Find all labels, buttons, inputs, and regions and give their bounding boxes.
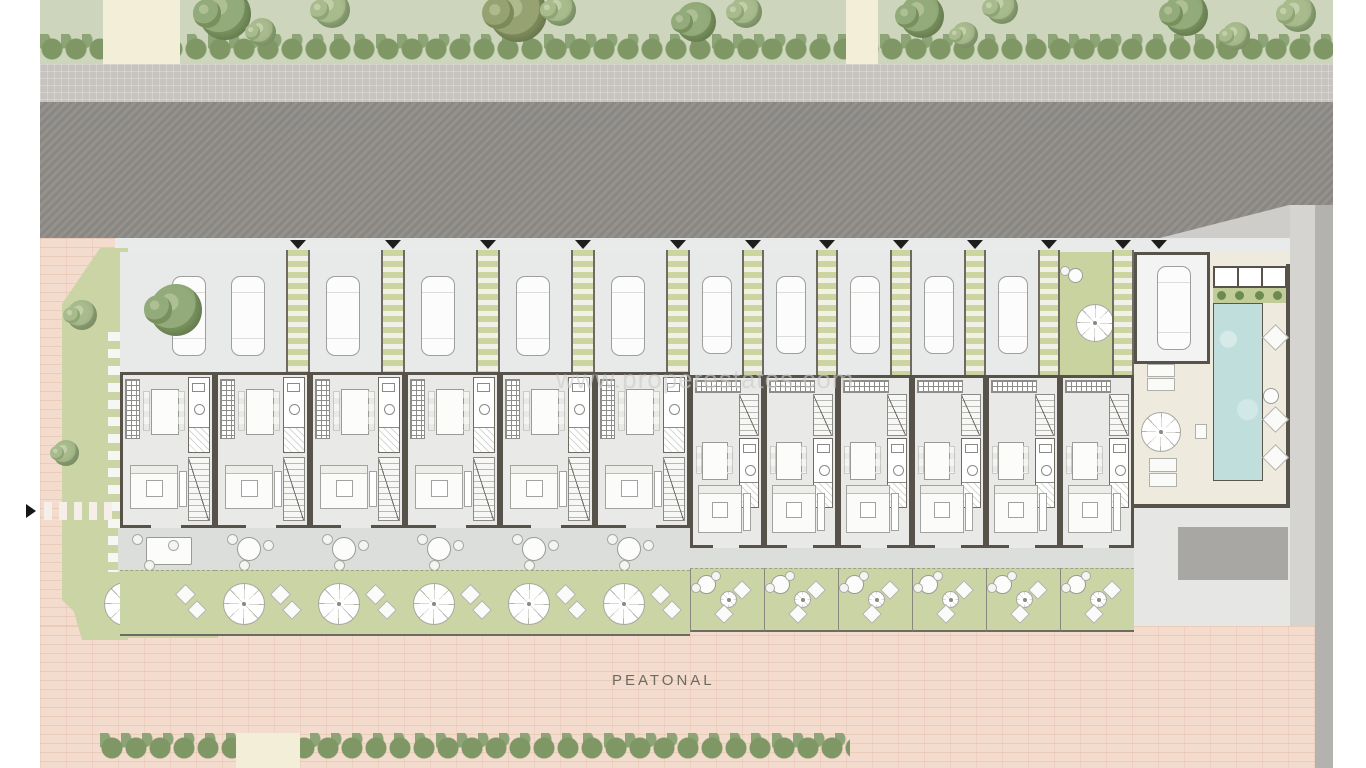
lounger: [460, 584, 481, 605]
east-paving-strip: [1290, 205, 1315, 630]
kitchen-counter: [125, 379, 140, 439]
lounger: [187, 600, 207, 620]
car-icon: [1157, 266, 1191, 350]
private-garden: [986, 568, 1060, 632]
coffee-table: [431, 480, 448, 497]
toilet-icon: [1115, 465, 1126, 476]
toilet-icon: [967, 465, 978, 476]
tv-bench: [817, 493, 825, 531]
unit-interior: [764, 375, 838, 548]
dining-table: [626, 389, 654, 435]
car-icon: [924, 276, 954, 354]
toilet-icon: [893, 465, 904, 476]
garage-unit: [1134, 252, 1210, 364]
staircase: [568, 457, 590, 521]
townhouse-unit-type-b: [838, 252, 912, 632]
car-icon: [516, 276, 550, 356]
pool-side-table: [1263, 388, 1279, 404]
shower: [189, 427, 209, 452]
garden-chair: [913, 583, 923, 593]
terrace-chair: [548, 540, 559, 551]
private-garden: [1060, 568, 1134, 632]
kitchen-counter: [991, 380, 1037, 393]
pergola-path: [381, 250, 405, 372]
sun-lounger: [1262, 444, 1289, 471]
sink-icon: [1113, 444, 1126, 453]
tv-bench: [965, 493, 973, 531]
lounger: [365, 584, 386, 605]
site-plan-canvas: www.properestates.com PEATONAL: [0, 0, 1366, 768]
dining-chairs: [949, 446, 955, 474]
terrace: [405, 528, 500, 570]
dining-table: [1072, 442, 1098, 480]
coffee-table: [712, 502, 728, 518]
townhouse-unit-type-a: [310, 252, 405, 636]
dining-chairs: [143, 391, 150, 431]
east-street-strip: [1315, 205, 1333, 768]
lounger: [270, 584, 291, 605]
tree: [952, 22, 978, 48]
entrance-marker-icon: [480, 240, 496, 249]
sink-icon: [477, 383, 490, 392]
terrace: [986, 548, 1060, 568]
private-garden: [838, 568, 912, 632]
unit-interior: [986, 375, 1060, 548]
staircase: [887, 394, 907, 436]
pergola-path: [286, 250, 310, 372]
staircase: [283, 457, 305, 521]
shower: [569, 427, 589, 452]
sun-lounger: [1147, 378, 1175, 391]
lounger: [567, 600, 587, 620]
dining-table: [702, 442, 728, 480]
lounger: [650, 584, 671, 605]
sink-icon: [192, 383, 205, 392]
entrance-marker-icon: [967, 240, 983, 249]
terrace-table: [332, 537, 356, 561]
tv-bench: [274, 471, 282, 507]
sofa: [698, 485, 742, 533]
terrace-chair: [643, 540, 654, 551]
coffee-table: [934, 502, 950, 518]
terrace-chair: [263, 540, 274, 551]
sun-lounger: [1262, 324, 1289, 351]
swimming-pool: [1213, 303, 1263, 481]
bathroom: [188, 377, 210, 453]
pergola-path: [476, 250, 500, 372]
staircase: [473, 457, 495, 521]
private-garden: [764, 568, 838, 632]
roof-pane: [1215, 268, 1237, 286]
tv-bench: [654, 471, 662, 507]
terrace-table: [237, 537, 261, 561]
car-icon: [326, 276, 360, 356]
tv-bench: [1039, 493, 1047, 531]
coffee-table: [1082, 502, 1098, 518]
sink-icon: [1039, 444, 1052, 453]
unit-interior: [215, 372, 310, 528]
townhouse-unit-type-b: [986, 252, 1060, 632]
terrace-chair: [227, 534, 238, 545]
shower: [664, 427, 684, 452]
toilet-icon: [1041, 465, 1052, 476]
pergola-path: [890, 250, 912, 375]
staircase: [813, 394, 833, 436]
terrace-table: [427, 537, 451, 561]
terrace: [310, 528, 405, 570]
dining-chairs: [558, 391, 565, 431]
staircase: [1109, 394, 1129, 436]
dining-chairs: [273, 391, 280, 431]
townhouse-unit-type-a: [500, 252, 595, 636]
terrace-table: [617, 537, 641, 561]
sofa: [320, 465, 368, 509]
tv-bench: [179, 471, 187, 507]
dining-table: [246, 389, 274, 435]
entrance-marker-icon: [385, 240, 401, 249]
pergola-path: [964, 250, 986, 375]
dining-chairs: [875, 446, 881, 474]
shower: [284, 427, 304, 452]
kitchen-counter: [917, 380, 963, 393]
staircase: [378, 457, 400, 521]
unit-interior: [310, 372, 405, 528]
car-icon: [702, 276, 732, 354]
tree: [150, 284, 202, 336]
roof-pane: [1263, 268, 1285, 286]
private-garden: [690, 568, 764, 632]
sink-icon: [965, 444, 978, 453]
dining-chairs: [238, 391, 245, 431]
kitchen-counter: [410, 379, 425, 439]
car-icon: [850, 276, 880, 354]
sun-lounger: [1149, 458, 1177, 472]
lounger: [377, 600, 397, 620]
sink-icon: [817, 444, 830, 453]
townhouse-unit-type-b: [1060, 252, 1134, 632]
terrace-chair: [322, 534, 333, 545]
north-path-gap: [846, 0, 878, 64]
pergola-path: [1038, 250, 1060, 375]
dining-chairs: [1097, 446, 1103, 474]
sofa: [605, 465, 653, 509]
terrace-chair: [132, 534, 143, 545]
roof-pane: [1239, 268, 1261, 286]
entrance-marker-icon: [290, 240, 306, 249]
townhouse-unit-type-a: [405, 252, 500, 636]
plant-icon: [1255, 291, 1264, 300]
garden-chair: [1081, 571, 1091, 581]
terrace: [595, 528, 690, 570]
coffee-table: [621, 480, 638, 497]
townhouse-unit-type-b: [912, 252, 986, 632]
private-garden: [595, 570, 690, 636]
toilet-icon: [745, 465, 756, 476]
terrace: [120, 528, 215, 570]
terrace-chair: [417, 534, 428, 545]
parasol-icon: [508, 583, 550, 625]
sink-icon: [382, 383, 395, 392]
pool-boundary-wall: [1286, 264, 1290, 508]
pergola-path: [666, 250, 690, 372]
pergola-path: [742, 250, 764, 375]
sofa: [772, 485, 816, 533]
sofa: [130, 465, 178, 509]
garden-chair: [933, 571, 943, 581]
sink-icon: [891, 444, 904, 453]
lounger: [175, 584, 196, 605]
dining-chairs: [770, 446, 776, 474]
coffee-table: [1008, 502, 1024, 518]
garden-table: [1068, 268, 1083, 283]
kitchen-counter: [1065, 380, 1111, 393]
private-garden: [405, 570, 500, 636]
tv-bench: [464, 471, 472, 507]
tree: [676, 2, 716, 42]
pool-pergola-roof: [1213, 266, 1287, 288]
pedestrian-street-label: PEATONAL: [612, 672, 715, 689]
coffee-table: [146, 480, 163, 497]
toilet-icon: [819, 465, 830, 476]
unit-interior: [595, 372, 690, 528]
garden-chair: [691, 583, 701, 593]
sofa: [510, 465, 558, 509]
terrace-table: [522, 537, 546, 561]
terrace-chair: [512, 534, 523, 545]
bathroom: [283, 377, 305, 453]
toilet-icon: [289, 404, 300, 415]
parasol-icon: [223, 583, 265, 625]
watermark: www.properestates.com: [556, 364, 846, 395]
garden-chair: [1060, 266, 1070, 276]
parasol-icon: [603, 583, 645, 625]
sun-lounger: [1262, 406, 1289, 433]
sofa: [920, 485, 964, 533]
entrance-marker-icon: [670, 240, 686, 249]
dining-chairs: [428, 391, 435, 431]
dining-chairs: [463, 391, 470, 431]
dining-table: [341, 389, 369, 435]
parasol-icon: [413, 583, 455, 625]
pool-planter: [1213, 288, 1287, 303]
shower: [379, 427, 399, 452]
lounger: [472, 600, 492, 620]
parasol-icon: [1141, 412, 1181, 452]
dining-chairs: [178, 391, 185, 431]
terrace: [764, 548, 838, 568]
staircase: [188, 457, 210, 521]
terrace-chair: [607, 534, 618, 545]
unit-interior: [1060, 375, 1134, 548]
terrace-chair: [453, 540, 464, 551]
entrance-marker-icon: [819, 240, 835, 249]
dining-chairs: [727, 446, 733, 474]
tv-bench: [891, 493, 899, 531]
bathroom: [378, 377, 400, 453]
unit-interior: [120, 372, 215, 528]
private-garden: [215, 570, 310, 636]
dining-table: [776, 442, 802, 480]
dining-chairs: [368, 391, 375, 431]
dining-chairs: [801, 446, 807, 474]
plant-icon: [1217, 291, 1226, 300]
car-icon: [611, 276, 645, 356]
pergola-path: [816, 250, 838, 375]
staircase: [961, 394, 981, 436]
sink-icon: [287, 383, 300, 392]
dining-table: [998, 442, 1024, 480]
staircase: [663, 457, 685, 521]
lounger: [555, 584, 576, 605]
south-hedge-row: [100, 733, 850, 768]
coffee-table: [786, 502, 802, 518]
dining-chairs: [1066, 446, 1072, 474]
side-table: [1195, 424, 1207, 439]
toilet-icon: [194, 404, 205, 415]
private-garden: [500, 570, 595, 636]
toilet-icon: [479, 404, 490, 415]
terrace: [500, 528, 595, 570]
dining-chairs: [918, 446, 924, 474]
plant-icon: [1273, 291, 1282, 300]
dining-chairs: [992, 446, 998, 474]
north-path-gap: [103, 0, 180, 64]
garden-chair: [765, 583, 775, 593]
townhouse-unit-type-b: [764, 252, 838, 632]
dining-table: [436, 389, 464, 435]
dining-table: [531, 389, 559, 435]
terrace: [690, 548, 764, 568]
terrace-chair: [168, 540, 179, 551]
kitchen-counter: [505, 379, 520, 439]
sink-icon: [743, 444, 756, 453]
private-garden: [310, 570, 405, 636]
car-icon: [421, 276, 455, 356]
dining-table: [151, 389, 179, 435]
garden-chair: [785, 571, 795, 581]
lounger: [662, 600, 682, 620]
coffee-table: [336, 480, 353, 497]
plant-icon: [1235, 291, 1244, 300]
dining-chairs: [653, 391, 660, 431]
entrance-marker-icon: [1151, 240, 1167, 249]
shower: [474, 427, 494, 452]
sofa: [225, 465, 273, 509]
terrace: [838, 548, 912, 568]
townhouse-unit-type-b: [690, 252, 764, 632]
townhouse-unit-type-a: [595, 252, 690, 636]
garden-chair: [1007, 571, 1017, 581]
dining-chairs: [1023, 446, 1029, 474]
tv-bench: [743, 493, 751, 531]
bathroom: [473, 377, 495, 453]
toilet-icon: [669, 404, 680, 415]
kitchen-counter: [220, 379, 235, 439]
dining-chairs: [618, 391, 625, 431]
lounger: [282, 600, 302, 620]
dining-chairs: [696, 446, 702, 474]
staircase: [739, 394, 759, 436]
sofa: [1068, 485, 1112, 533]
private-garden: [912, 568, 986, 632]
car-icon: [998, 276, 1028, 354]
tree: [53, 440, 79, 466]
tree: [67, 300, 97, 330]
parasol-icon: [318, 583, 360, 625]
garden-chair: [1061, 583, 1071, 593]
dining-table: [924, 442, 950, 480]
dining-chairs: [844, 446, 850, 474]
site-entry-arrow-icon: [26, 504, 36, 518]
sofa: [846, 485, 890, 533]
sun-lounger: [1149, 473, 1177, 487]
sidewalk: [40, 64, 1333, 102]
tree: [1222, 22, 1250, 50]
tv-bench: [369, 471, 377, 507]
coffee-table: [526, 480, 543, 497]
terrace: [215, 528, 310, 570]
pool-area: [1133, 252, 1290, 508]
coffee-table: [860, 502, 876, 518]
unit-interior: [500, 372, 595, 528]
tv-bench: [559, 471, 567, 507]
unit-interior: [838, 375, 912, 548]
unit-interior: [405, 372, 500, 528]
entrance-marker-icon: [575, 240, 591, 249]
car-icon: [231, 276, 265, 356]
toilet-icon: [574, 404, 585, 415]
parasol-icon: [1076, 304, 1114, 342]
sofa: [994, 485, 1038, 533]
pergola-path: [571, 250, 595, 372]
garden-chair: [859, 571, 869, 581]
pergola-path: [1112, 250, 1134, 375]
dining-chairs: [333, 391, 340, 431]
coffee-table: [241, 480, 258, 497]
dining-table: [850, 442, 876, 480]
garden-chair: [839, 583, 849, 593]
dining-chairs: [523, 391, 530, 431]
kitchen-counter: [315, 379, 330, 439]
unit-interior: [690, 375, 764, 548]
unit-interior: [912, 375, 986, 548]
entrance-marker-icon: [893, 240, 909, 249]
southeast-platform: [1178, 527, 1288, 580]
staircase: [1035, 394, 1055, 436]
terrace-chair: [358, 540, 369, 551]
entrance-marker-icon: [1041, 240, 1057, 249]
tree: [248, 18, 276, 46]
terrace: [912, 548, 986, 568]
toilet-icon: [384, 404, 395, 415]
road: [40, 102, 1333, 238]
car-icon: [776, 276, 806, 354]
pedestrian-crossing: [44, 502, 114, 520]
garden-chair: [987, 583, 997, 593]
sofa: [415, 465, 463, 509]
private-garden: [120, 570, 215, 636]
garden-chair: [711, 571, 721, 581]
terrace: [1060, 548, 1134, 568]
sun-lounger: [1147, 364, 1175, 377]
entrance-marker-icon: [1115, 240, 1131, 249]
tv-bench: [1113, 493, 1121, 531]
entrance-marker-icon: [745, 240, 761, 249]
townhouse-unit-type-a: [215, 252, 310, 636]
south-path-gap: [236, 733, 300, 768]
